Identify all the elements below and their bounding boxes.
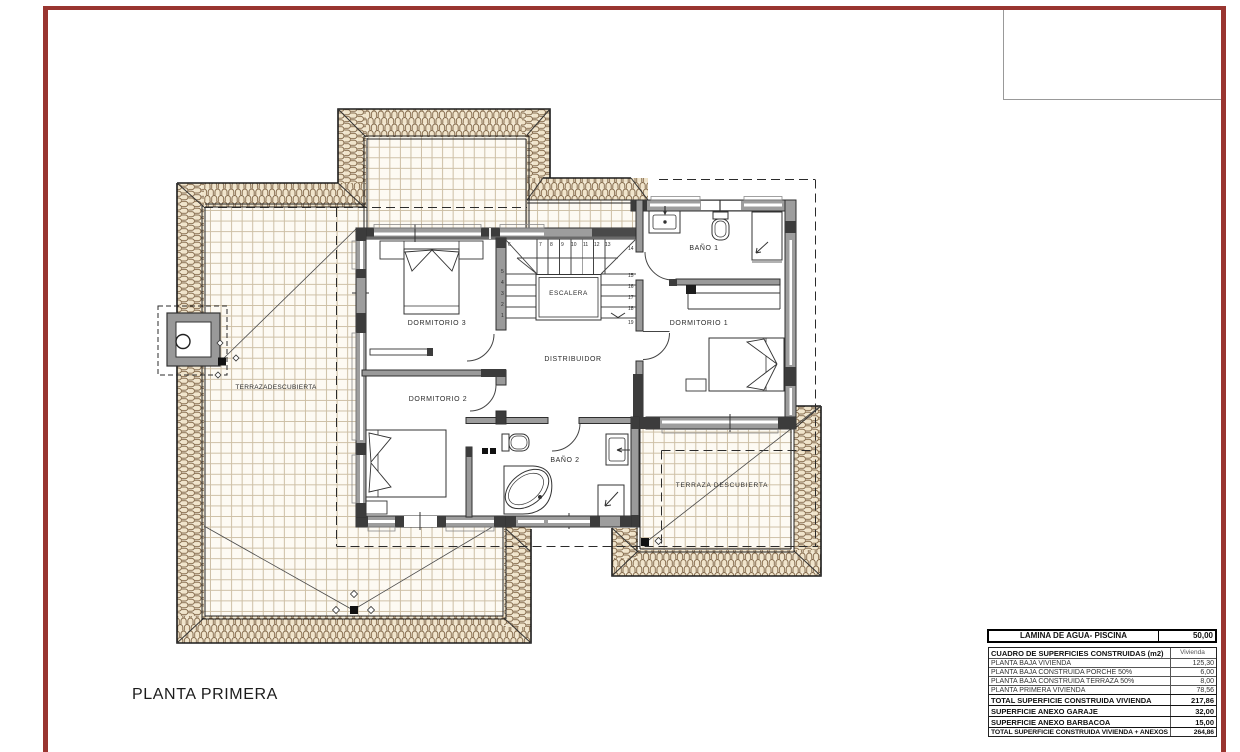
svg-text:14: 14 (628, 246, 634, 252)
svg-text:4: 4 (501, 280, 504, 286)
svg-text:BAÑO 2: BAÑO 2 (550, 455, 579, 464)
svg-text:DISTRIBUIDOR: DISTRIBUIDOR (544, 356, 601, 363)
svg-text:1: 1 (501, 313, 504, 319)
svg-text:9: 9 (561, 242, 564, 248)
svg-text:13: 13 (605, 242, 611, 248)
svg-text:BAÑO 1: BAÑO 1 (689, 243, 718, 252)
svg-text:DORMITORIO 1: DORMITORIO 1 (670, 320, 728, 327)
svg-text:17: 17 (628, 295, 634, 301)
svg-text:16: 16 (628, 284, 634, 290)
svg-text:8: 8 (550, 242, 553, 248)
svg-text:3: 3 (501, 291, 504, 297)
svg-text:12: 12 (594, 242, 600, 248)
svg-text:DORMITORIO 2: DORMITORIO 2 (409, 396, 467, 403)
svg-text:19: 19 (628, 320, 634, 326)
svg-text:7: 7 (539, 242, 542, 248)
svg-text:15: 15 (628, 273, 634, 279)
svg-text:DORMITORIO 3: DORMITORIO 3 (408, 320, 466, 327)
svg-text:2: 2 (501, 302, 504, 308)
svg-text:10: 10 (571, 242, 577, 248)
svg-text:ESCALERA: ESCALERA (549, 290, 588, 297)
svg-text:18: 18 (628, 306, 634, 312)
svg-text:6: 6 (508, 242, 511, 248)
svg-text:11: 11 (583, 242, 588, 248)
svg-text:5: 5 (501, 269, 504, 275)
svg-text:TERRAZA DESCUBIERTA: TERRAZA DESCUBIERTA (676, 482, 769, 489)
svg-text:TERRAZADESCUBIERTA: TERRAZADESCUBIERTA (235, 384, 317, 391)
